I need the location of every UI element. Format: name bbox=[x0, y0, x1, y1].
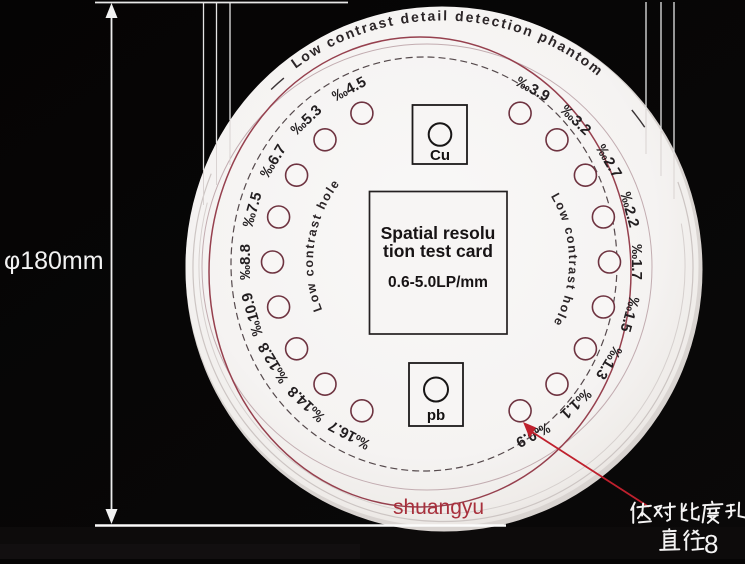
svg-text:8: 8 bbox=[704, 529, 718, 559]
svg-text:Cu: Cu bbox=[430, 147, 450, 164]
svg-text:φ180mm: φ180mm bbox=[4, 247, 104, 275]
svg-text:shuangyu: shuangyu bbox=[393, 496, 484, 519]
svg-text:Spatial resolu: Spatial resolu bbox=[381, 223, 496, 243]
svg-text:‰1.7: ‰1.7 bbox=[628, 244, 645, 280]
svg-text:0.6-5.0LP/mm: 0.6-5.0LP/mm bbox=[388, 274, 488, 291]
svg-text:tion test card: tion test card bbox=[383, 241, 493, 261]
svg-text:‰8.8: ‰8.8 bbox=[237, 244, 254, 280]
svg-text:pb: pb bbox=[427, 407, 445, 424]
